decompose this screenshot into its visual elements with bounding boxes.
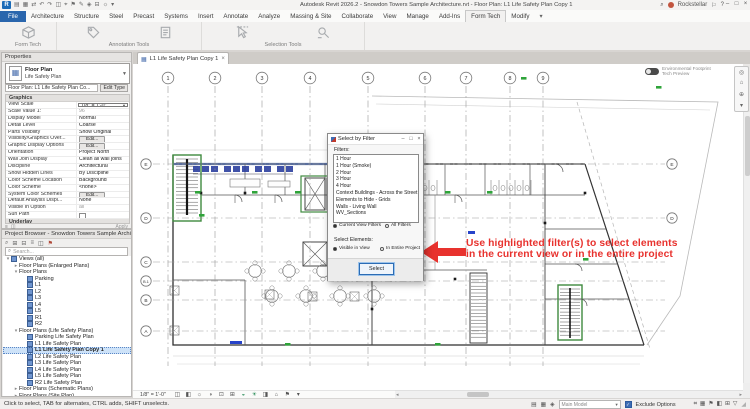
edit-button[interactable]: Edit... bbox=[79, 192, 105, 198]
radio-icon bbox=[333, 247, 337, 251]
browser-item-label: R2 Life Safety Plan bbox=[35, 380, 82, 386]
radio-icon bbox=[380, 247, 384, 251]
ribbon-tab-manage[interactable]: Manage bbox=[401, 11, 433, 22]
svg-text:C: C bbox=[144, 260, 148, 266]
property-name: System Color Schemes bbox=[6, 192, 77, 198]
radio-label: Visible in View bbox=[339, 246, 370, 251]
filter-item-2-hour[interactable]: 2 Hour bbox=[334, 170, 418, 177]
browser-list-icon[interactable]: ≡ bbox=[30, 240, 34, 246]
home-view-icon[interactable]: ⌂ bbox=[740, 80, 744, 86]
property-name: Orientation bbox=[6, 150, 77, 156]
sync-icon[interactable]: ⇄ bbox=[31, 1, 36, 10]
ribbon-tab-view[interactable]: View bbox=[378, 11, 401, 22]
drawing-canvas[interactable]: 123456789EEDDCB.1BA bbox=[133, 64, 743, 390]
ribbon-panel-label: Form Tech bbox=[15, 42, 41, 50]
worksets-icon[interactable]: ▤ bbox=[531, 402, 536, 408]
browser-search-box[interactable]: ⌕ Search... bbox=[5, 247, 128, 256]
ribbon-tab-precast[interactable]: Precast bbox=[128, 11, 159, 22]
search-placeholder: Search... bbox=[13, 249, 34, 255]
property-value[interactable]: Edit... bbox=[77, 136, 129, 142]
edit-button[interactable]: Edit... bbox=[79, 143, 105, 149]
instance-selector[interactable]: Floor Plan: L1 Life Safety Plan Co... bbox=[5, 84, 98, 92]
property-value[interactable]: 1/8" = 1'-0"▼ bbox=[78, 103, 128, 108]
plan-view-icon bbox=[27, 308, 33, 314]
redo-icon[interactable]: ↷ bbox=[47, 1, 52, 10]
ribbon-tab-analyze[interactable]: Analyze bbox=[253, 11, 285, 22]
search-icon[interactable]: ⌕ bbox=[660, 2, 663, 9]
ribbon-tab-insert[interactable]: Insert bbox=[193, 11, 218, 22]
dialog-title-bar[interactable]: Select by Filter –□× bbox=[328, 134, 423, 145]
plan-view-icon bbox=[27, 373, 33, 379]
navbar-more-icon[interactable]: ▾ bbox=[740, 102, 743, 109]
active-workset-icon[interactable]: ▦ bbox=[541, 402, 546, 408]
annotation-arrow bbox=[420, 236, 470, 266]
status-left-icons: ▤▦◈ bbox=[531, 402, 554, 408]
browser-item-label: L2 bbox=[35, 289, 41, 295]
ribbon-tab-massing-site[interactable]: Massing & Site bbox=[285, 11, 336, 22]
title-bar: R ▤▦⇄↶↷◫⌖⚑✎◈⊟☼▾ Autodesk Revit 2026.2 - … bbox=[0, 0, 750, 10]
browser-flag-icon[interactable]: ⚑ bbox=[48, 240, 53, 247]
property-value[interactable]: Background bbox=[77, 178, 129, 184]
status-bar-right: ▤▦◈ Main Model▼ ✓ Exclude Options ⌗▦⚑◧⊞▽… bbox=[531, 400, 746, 409]
design-options-dropdown[interactable]: Main Model▼ bbox=[559, 400, 621, 409]
exclude-options-checkbox[interactable]: ✓ bbox=[625, 401, 632, 408]
svg-text:D: D bbox=[144, 216, 148, 222]
annotation-tag-button[interactable] bbox=[82, 22, 104, 42]
browser-item-label: Parking Life Safety Plan bbox=[35, 334, 94, 340]
ribbon-overflow-button[interactable]: ▾ bbox=[535, 11, 548, 22]
env-footprint-toggle-wrap: Environmental Footprint Tech Preview bbox=[645, 66, 711, 76]
selection-toggle-icons: ⌗▦⚑◧⊞▽ bbox=[694, 401, 738, 408]
select-button[interactable]: Select bbox=[359, 263, 394, 275]
avatar[interactable] bbox=[668, 2, 674, 8]
property-row-parts-visibility: Parts VisibilityShow Original bbox=[6, 130, 129, 137]
browser-item-label: L1 bbox=[35, 282, 41, 288]
annotation-text: Use highlighted filter(s) to select elem… bbox=[466, 239, 746, 261]
default-3d-view-icon[interactable]: ◈ bbox=[87, 1, 92, 10]
browser-item-label: L3 bbox=[35, 295, 41, 301]
ribbon-tab-add-ins[interactable]: Add-Ins bbox=[434, 11, 465, 22]
window-buttons: –□× bbox=[723, 0, 750, 10]
property-name: Graphic Display Options bbox=[6, 143, 77, 149]
select-by-filter-button[interactable] bbox=[313, 22, 335, 42]
property-name: Wall Join Display bbox=[6, 157, 77, 163]
browser-item-label: L1 Life Safety Plan Copy 1 bbox=[35, 347, 104, 353]
browser-item-label: Floor Plans (Site Plan) bbox=[19, 393, 74, 396]
plan-view-icon bbox=[27, 282, 33, 288]
filter-item-3-hour[interactable]: 3 Hour bbox=[334, 176, 418, 183]
section-icon[interactable]: ⊟ bbox=[95, 1, 100, 10]
svg-text:1: 1 bbox=[167, 76, 170, 82]
revit-application-window: R ▤▦⇄↶↷◫⌖⚑✎◈⊟☼▾ Autodesk Revit 2026.2 - … bbox=[0, 0, 750, 409]
plan-view-icon bbox=[27, 321, 33, 327]
property-name: Color Scheme bbox=[6, 185, 77, 191]
design-options-icon[interactable]: ◈ bbox=[550, 402, 554, 408]
property-value[interactable]: None bbox=[77, 198, 129, 204]
property-name: Show Hidden Lines bbox=[6, 171, 77, 177]
filter-item-1-hour[interactable]: 1 Hour bbox=[334, 156, 418, 163]
ribbon-tab-annotate[interactable]: Annotate bbox=[218, 11, 253, 22]
browser-settings-icon[interactable]: ◫ bbox=[38, 240, 44, 247]
property-row-color-scheme: Color Scheme<none> bbox=[6, 185, 129, 192]
browser-item-label: L5 bbox=[35, 308, 41, 314]
type-family: Floor Plan bbox=[25, 67, 61, 74]
radio-icon bbox=[333, 224, 337, 228]
svg-text:B: B bbox=[144, 298, 147, 304]
plan-view-icon bbox=[27, 367, 33, 373]
ribbon-panel-buttons bbox=[202, 22, 364, 42]
measure-icon[interactable]: ⌖ bbox=[64, 1, 67, 10]
property-value[interactable]: Project North bbox=[77, 150, 129, 156]
browser-item-label: L4 Life Safety Plan bbox=[35, 367, 81, 373]
property-value[interactable]: Coarse bbox=[77, 123, 129, 129]
ribbon-tab-architecture[interactable]: Architecture bbox=[26, 11, 69, 22]
ribbon-tab-structure[interactable]: Structure bbox=[69, 11, 104, 22]
note-icon bbox=[158, 25, 173, 40]
type-thumbnail-icon: ▦ bbox=[9, 66, 22, 81]
steering-wheel-icon[interactable]: ◎ bbox=[739, 69, 744, 76]
dialog-minimize-button[interactable]: – bbox=[399, 136, 407, 142]
save-icon[interactable]: ▦ bbox=[23, 1, 29, 10]
property-value[interactable]: <none> bbox=[77, 185, 129, 191]
restore-button[interactable]: □ bbox=[732, 0, 741, 10]
browser-item-label: L2 Life Safety Plan bbox=[35, 354, 81, 360]
open-icon[interactable]: ▤ bbox=[14, 1, 20, 10]
browser-item-label: Floor Plans (Schematic Plans) bbox=[19, 386, 93, 392]
plan-view-icon bbox=[27, 289, 33, 295]
title-bar-right: ⌕ Rockstellar ⚐? bbox=[660, 0, 724, 10]
minimize-button[interactable]: – bbox=[723, 0, 732, 10]
ribbon-tab-steel[interactable]: Steel bbox=[104, 11, 128, 22]
property-row-view-scale: View Scale1/8" = 1'-0"▼ bbox=[6, 102, 129, 109]
dialog-window-buttons: –□× bbox=[399, 136, 423, 142]
browser-collapse-icon[interactable]: ⊟ bbox=[21, 240, 26, 247]
filter-item-elements-to-hide-grids[interactable]: Elements to Hide - Grids bbox=[334, 197, 418, 204]
select-faces-icon[interactable]: ◧ bbox=[717, 401, 722, 408]
browser-item-label: L1 Life Safety Plan bbox=[35, 341, 81, 347]
text-icon[interactable]: ✎ bbox=[79, 1, 84, 10]
filter-item-4-hour[interactable]: 4 Hour bbox=[334, 183, 418, 190]
qat-customize-icon[interactable]: ▾ bbox=[111, 1, 114, 10]
property-value[interactable]: Architectural bbox=[77, 164, 129, 170]
browser-expand-icon[interactable]: ⊞ bbox=[12, 240, 17, 247]
filter-scope-current-view-filters[interactable]: Current View Filters bbox=[333, 223, 381, 228]
select-links-icon[interactable]: ⌗ bbox=[694, 401, 697, 408]
cube-icon bbox=[21, 25, 36, 40]
chevron-down-icon: ▼ bbox=[122, 71, 127, 77]
thin-lines-icon[interactable]: ☼ bbox=[103, 1, 109, 10]
property-value[interactable]: Edit... bbox=[77, 143, 129, 149]
dialog-footer: Select bbox=[328, 258, 423, 281]
property-row-graphic-display-options: Graphic Display OptionsEdit... bbox=[6, 143, 129, 150]
environmental-footprint-label: Environmental Footprint Tech Preview bbox=[662, 66, 711, 76]
tag-icon bbox=[86, 25, 101, 40]
revit-logo[interactable]: R bbox=[2, 1, 11, 9]
cursor-icon bbox=[235, 25, 250, 40]
browser-item-label: L3 Life Safety Plan bbox=[35, 360, 81, 366]
property-name: Discipline bbox=[6, 164, 77, 170]
svg-text:9: 9 bbox=[542, 76, 545, 82]
type-selector[interactable]: ▦ Floor Plan Life Safety Plan ▼ bbox=[5, 63, 130, 84]
plan-view-icon bbox=[27, 276, 33, 282]
form-tools-button[interactable] bbox=[17, 22, 39, 42]
ribbon-tab-file[interactable]: File bbox=[0, 11, 26, 22]
ribbon-panel-label: Selection Tools bbox=[265, 42, 302, 50]
plan-view-icon bbox=[27, 354, 33, 360]
properties-header[interactable]: Properties bbox=[2, 53, 131, 62]
navigation-bar: ◎⌂⊕▾ bbox=[734, 66, 749, 112]
property-name: Visibility/Graphics Over... bbox=[6, 136, 77, 142]
select-underlay-icon[interactable]: ▦ bbox=[700, 401, 705, 408]
properties-section-graphics[interactable]: Graphics bbox=[6, 95, 129, 102]
plan-view-icon bbox=[27, 341, 33, 347]
element-scope-in-entire-project[interactable]: In Entire Project bbox=[380, 246, 420, 251]
ribbon: Form TechAnnotation ToolsSelection Tools bbox=[0, 22, 750, 51]
property-name: Parts Visibility bbox=[6, 130, 77, 136]
ribbon-panel-buttons bbox=[0, 22, 56, 42]
property-name: Detail Level bbox=[6, 123, 77, 129]
close-icon[interactable]: × bbox=[221, 56, 225, 62]
svg-text:E: E bbox=[144, 162, 147, 168]
value-text: 1/8" = 1'-0" bbox=[81, 104, 106, 107]
status-bar: Click to select, TAB for alternates, CTR… bbox=[0, 398, 750, 409]
svg-text:4: 4 bbox=[309, 76, 312, 82]
property-row-display-model: Display ModelNormal bbox=[6, 116, 129, 123]
scroll-corner bbox=[743, 383, 750, 398]
browser-item-label: Parking bbox=[35, 276, 54, 282]
plan-view-icon bbox=[27, 360, 33, 366]
zoom-icon[interactable]: ⊕ bbox=[739, 91, 744, 98]
property-row-discipline: DisciplineArchitectural bbox=[6, 164, 129, 171]
property-value: 96 bbox=[77, 109, 129, 115]
property-name: View Scale bbox=[6, 102, 77, 108]
search-icon: ⌕ bbox=[6, 248, 13, 255]
property-row-color-scheme-location: Color Scheme LocationBackground bbox=[6, 178, 129, 185]
view-tab-label: L1 Life Safety Plan Copy 1 bbox=[150, 56, 219, 62]
filter-item-context-buildings-across-the-street[interactable]: Context Buildings - Across the Street bbox=[334, 190, 418, 197]
property-row-orientation: OrientationProject North bbox=[6, 150, 129, 157]
property-row-scale-value-1: Scale Value 1:96 bbox=[6, 109, 129, 116]
resize-grip[interactable]: ◢ bbox=[741, 401, 746, 408]
filters-listbox[interactable]: 1 Hour1 Hour (Smoke)2 Hour3 Hour4 HourCo… bbox=[333, 154, 419, 223]
browser-item-label: Views (all) bbox=[19, 256, 44, 262]
select-by-filter-dialog: Select by Filter –□× Filters: 1 Hour1 Ho… bbox=[327, 133, 424, 281]
close-button[interactable]: × bbox=[741, 0, 750, 10]
property-row-default-analysis-displ: Default Analysis Displ...None bbox=[6, 198, 129, 205]
property-row-show-hidden-lines: Show Hidden LinesBy Discipline bbox=[6, 171, 129, 178]
svg-text:8: 8 bbox=[509, 76, 512, 82]
radio-label: All Filters bbox=[391, 223, 411, 228]
notification-icon[interactable]: ⚐ bbox=[711, 2, 716, 9]
property-name: Scale Value 1: bbox=[6, 109, 77, 115]
property-value[interactable]: By Discipline bbox=[77, 171, 129, 177]
svg-text:3: 3 bbox=[261, 76, 264, 82]
dialog-icon bbox=[331, 137, 336, 142]
ribbon-tab-form-tech[interactable]: Form Tech bbox=[465, 10, 506, 22]
floor-plan-drawing: 123456789EEDDCB.1BA bbox=[135, 64, 741, 390]
browser-item-label: Floor Plans (Enlarged Plans) bbox=[19, 263, 89, 269]
ribbon-panel-form-tech: Form Tech bbox=[0, 22, 57, 50]
property-value[interactable]: Clean all wall joins bbox=[77, 157, 129, 163]
plan-view-icon: ▦ bbox=[141, 56, 147, 63]
type-name: Life Safety Plan bbox=[25, 74, 61, 80]
filter-item-wv-sections[interactable]: WV_Sections bbox=[334, 210, 418, 217]
ribbon-panel-label: Annotation Tools bbox=[109, 42, 150, 50]
annotation-note-button[interactable] bbox=[154, 22, 176, 42]
radio-icon bbox=[385, 224, 389, 228]
user-name[interactable]: Rockstellar bbox=[678, 2, 708, 8]
svg-text:7: 7 bbox=[465, 76, 468, 82]
property-name: Color Scheme Location bbox=[6, 178, 77, 184]
ribbon-tab-systems[interactable]: Systems bbox=[159, 11, 193, 22]
ribbon-panel-buttons bbox=[57, 22, 201, 42]
browser-item-label: L5 Life Safety Plan bbox=[35, 373, 81, 379]
svg-text:D: D bbox=[670, 216, 674, 222]
property-value[interactable]: Edit... bbox=[77, 192, 129, 198]
svg-text:6: 6 bbox=[424, 76, 427, 82]
browser-search-icon[interactable]: ⌕ bbox=[5, 240, 8, 247]
dialog-close-button[interactable]: × bbox=[415, 136, 423, 142]
browser-item-label: R1 bbox=[35, 315, 42, 321]
ribbon-panel-annotation-tools: Annotation Tools bbox=[57, 22, 202, 50]
filter-item-1-hour-smoke[interactable]: 1 Hour (Smoke) bbox=[334, 163, 418, 170]
quick-access-toolbar: ▤▦⇄↶↷◫⌖⚑✎◈⊟☼▾ bbox=[14, 0, 114, 10]
ribbon-tab-modify[interactable]: Modify bbox=[506, 11, 534, 22]
select-pinned-icon[interactable]: ⚑ bbox=[708, 401, 713, 408]
tag-icon[interactable]: ⚑ bbox=[71, 1, 76, 10]
plan-view-icon bbox=[27, 334, 33, 340]
property-name: Display Model bbox=[6, 116, 77, 122]
plan-view-icon bbox=[27, 315, 33, 321]
property-value[interactable] bbox=[77, 212, 129, 218]
project-browser-toolbar: ⌕⊞⊟≡◫⚑ bbox=[5, 239, 128, 247]
property-value[interactable]: Normal bbox=[77, 116, 129, 122]
radio-label: Current View Filters bbox=[339, 223, 381, 228]
browser-item-label: Floor Plans bbox=[19, 269, 47, 275]
undo-icon[interactable]: ↶ bbox=[39, 1, 44, 10]
instance-row: Floor Plan: L1 Life Safety Plan Co... Ed… bbox=[5, 84, 128, 92]
edit-type-button[interactable]: Edit Type bbox=[100, 84, 128, 92]
environmental-footprint-toggle[interactable] bbox=[645, 68, 659, 75]
element-scope-visible-in-view[interactable]: Visible in View bbox=[333, 246, 370, 251]
property-row-detail-level: Detail LevelCoarse bbox=[6, 123, 129, 130]
exclude-options-label: Exclude Options bbox=[636, 402, 676, 408]
browser-item-label: R2 bbox=[35, 321, 42, 327]
ribbon-tab-collaborate[interactable]: Collaborate bbox=[337, 11, 379, 22]
svg-text:E: E bbox=[670, 162, 673, 168]
property-row-visible-in-option: Visible In Optionall bbox=[6, 205, 129, 212]
property-row-sun-path: Sun Path bbox=[6, 212, 129, 219]
property-row-system-color-schemes: System Color SchemesEdit... bbox=[6, 192, 129, 199]
property-value: all bbox=[77, 205, 129, 211]
project-browser-header[interactable]: Project Browser - Snowdon Towers Sample … bbox=[2, 230, 131, 239]
properties-palette: Properties ▦ Floor Plan Life Safety Plan… bbox=[1, 52, 132, 229]
filter-icon bbox=[316, 25, 331, 40]
views-root-icon bbox=[11, 256, 17, 262]
radio-label: In Entire Project bbox=[386, 246, 420, 251]
selection-filter-icon[interactable]: ▽ bbox=[733, 401, 737, 408]
browser-tree: ▾Views (all)▸Floor Plans (Enlarged Plans… bbox=[3, 256, 131, 396]
property-row-visibility-graphics-over: Visibility/Graphics Over...Edit... bbox=[6, 136, 129, 143]
sun-path-checkbox[interactable] bbox=[79, 213, 86, 218]
plan-view-icon bbox=[27, 380, 33, 386]
drag-select-icon[interactable]: ⊞ bbox=[725, 401, 730, 408]
property-row-wall-join-display: Wall Join DisplayClean all wall joins bbox=[6, 157, 129, 164]
svg-text:B.1: B.1 bbox=[143, 280, 149, 284]
ribbon-panel-selection-tools: Selection Tools bbox=[202, 22, 365, 50]
browser-item-label: L4 bbox=[35, 302, 41, 308]
project-browser: Project Browser - Snowdon Towers Sample … bbox=[1, 229, 132, 397]
dialog-title: Select by Filter bbox=[338, 136, 375, 142]
edit-button[interactable]: Edit... bbox=[79, 136, 105, 142]
pick-elements-button[interactable] bbox=[232, 22, 254, 42]
filter-item-walls-living-wall[interactable]: Walls - Living Wall bbox=[334, 204, 418, 211]
property-name: Visible In Option bbox=[6, 205, 77, 211]
filter-scope-all-filters[interactable]: All Filters bbox=[385, 223, 411, 228]
print-icon[interactable]: ◫ bbox=[55, 1, 61, 10]
browser-item-floor-plans-site-plan[interactable]: ▸Floor Plans (Site Plan) bbox=[3, 393, 131, 397]
plan-view-icon bbox=[27, 347, 33, 353]
property-name: Default Analysis Displ... bbox=[6, 198, 77, 204]
property-name: Sun Path bbox=[6, 212, 77, 218]
plan-view-icon bbox=[27, 295, 33, 301]
plan-view-icon bbox=[27, 302, 33, 308]
chevron-down-icon: ▼ bbox=[122, 104, 127, 107]
property-value[interactable]: Show Original bbox=[77, 130, 129, 136]
dialog-maximize-button[interactable]: □ bbox=[407, 136, 415, 142]
svg-text:5: 5 bbox=[367, 76, 370, 82]
window-title: Autodesk Revit 2026.2 - Snowdon Towers S… bbox=[300, 0, 600, 10]
select-elements-label: Select Elements: bbox=[334, 237, 373, 243]
properties-grid: GraphicsView Scale1/8" = 1'-0"▼Scale Val… bbox=[5, 94, 130, 224]
svg-text:2: 2 bbox=[214, 76, 217, 82]
filters-label: Filters: bbox=[334, 147, 350, 153]
status-hint: Click to select, TAB for alternates, CTR… bbox=[4, 401, 169, 407]
browser-item-label: Floor Plans (Life Safety Plans) bbox=[19, 328, 93, 334]
